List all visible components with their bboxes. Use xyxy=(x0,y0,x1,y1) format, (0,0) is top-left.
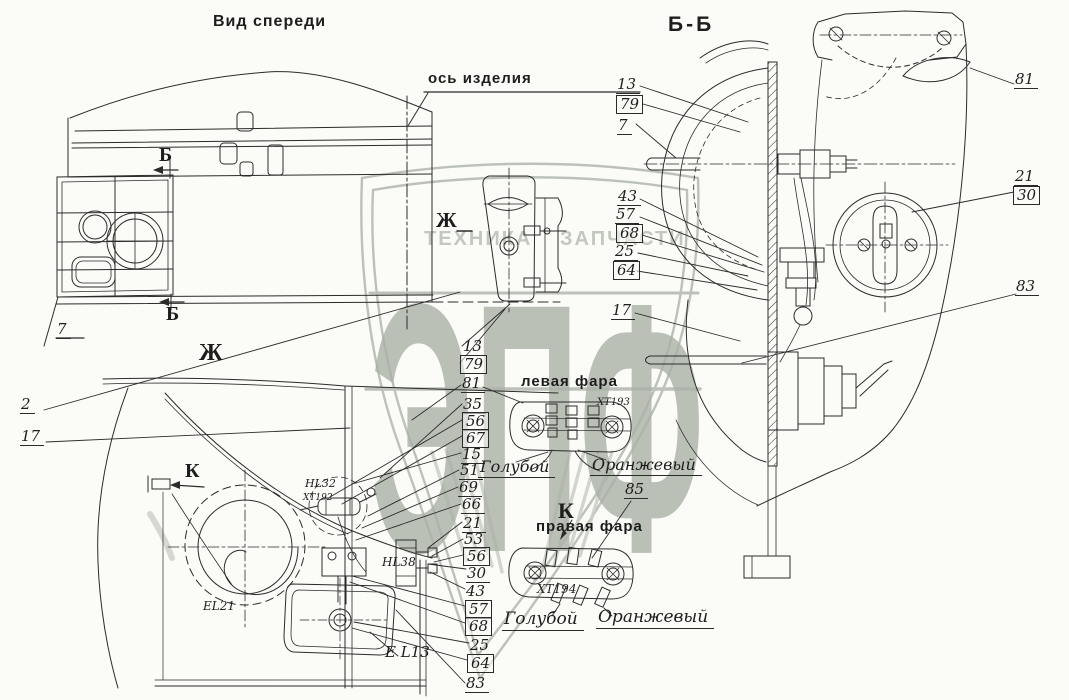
callout-17-front: 17 xyxy=(20,428,44,446)
callout-c-13: 13 xyxy=(462,338,486,356)
callout-c-30: 30 xyxy=(466,565,490,583)
callout-43-bb: 43 xyxy=(617,188,641,206)
section-letter-b-bottom: Б xyxy=(166,303,179,326)
callout-2: 2 xyxy=(20,396,35,414)
view-letter-k-right: К xyxy=(558,498,574,524)
parts-diagram-page: ТЕХНИКА ЗАПЧАСТИ ЭПФ xyxy=(0,0,1069,700)
callout-57-bb: 57 xyxy=(615,206,639,224)
callout-c-64: 64 xyxy=(467,654,494,673)
component-label-xt193: XT193 xyxy=(597,397,630,408)
view-letter-zh-front: Ж xyxy=(199,340,223,367)
front-view-title: Вид спереди xyxy=(213,13,326,31)
callout-79-bb: 79 xyxy=(616,95,643,114)
component-label-xt194: XT194 xyxy=(537,582,576,596)
callout-c-81: 81 xyxy=(461,375,485,393)
callout-c-83: 83 xyxy=(465,675,489,693)
right-fara-title: правая фара xyxy=(536,518,643,535)
callout-68-bb: 68 xyxy=(616,224,643,243)
callout-83-bb: 83 xyxy=(1015,278,1039,296)
callout-c-25: 25 xyxy=(469,637,493,655)
callout-21-bb: 21 xyxy=(1014,168,1038,186)
section-letter-b-top: Б xyxy=(159,144,172,167)
wire-label-right-orange: Оранжевый xyxy=(596,607,714,629)
callout-7-front: 7 xyxy=(56,321,71,339)
left-fara-title: левая фара xyxy=(521,373,618,390)
component-label-el21: EL21 xyxy=(203,599,235,613)
wire-label-left-blue: Голубой xyxy=(478,457,555,478)
axis-label: ось изделия xyxy=(428,70,532,87)
callout-13-bb: 13 xyxy=(616,76,640,94)
callout-c-68: 68 xyxy=(465,617,492,636)
callout-7-bb: 7 xyxy=(617,117,632,135)
technical-drawing-linework: ТЕХНИКА ЗАПЧАСТИ ЭПФ xyxy=(0,0,1069,700)
callout-17-bb: 17 xyxy=(611,302,635,320)
callout-25-bb: 25 xyxy=(614,243,638,261)
component-label-hl38: HL38 xyxy=(382,555,416,569)
wire-label-left-orange: Оранжевый xyxy=(590,455,702,476)
view-letter-zh-detail: Ж xyxy=(436,208,457,233)
callout-64-bb: 64 xyxy=(613,261,640,280)
wire-label-right-blue: Голубой xyxy=(502,609,584,631)
callout-c-79: 79 xyxy=(460,355,487,374)
component-label-xt192: XT192 xyxy=(303,493,333,503)
callout-81: 81 xyxy=(1014,71,1038,89)
callout-30-bb: 30 xyxy=(1013,186,1040,205)
section-bb-title: Б-Б xyxy=(668,13,714,37)
component-label-hl32: HL32 xyxy=(305,477,336,490)
callout-c-43: 43 xyxy=(465,583,489,601)
view-letter-k-left: К xyxy=(185,460,200,483)
callout-85: 85 xyxy=(624,481,648,499)
component-label-el13: E L13 xyxy=(385,643,430,661)
callout-c-66: 66 xyxy=(461,496,485,514)
